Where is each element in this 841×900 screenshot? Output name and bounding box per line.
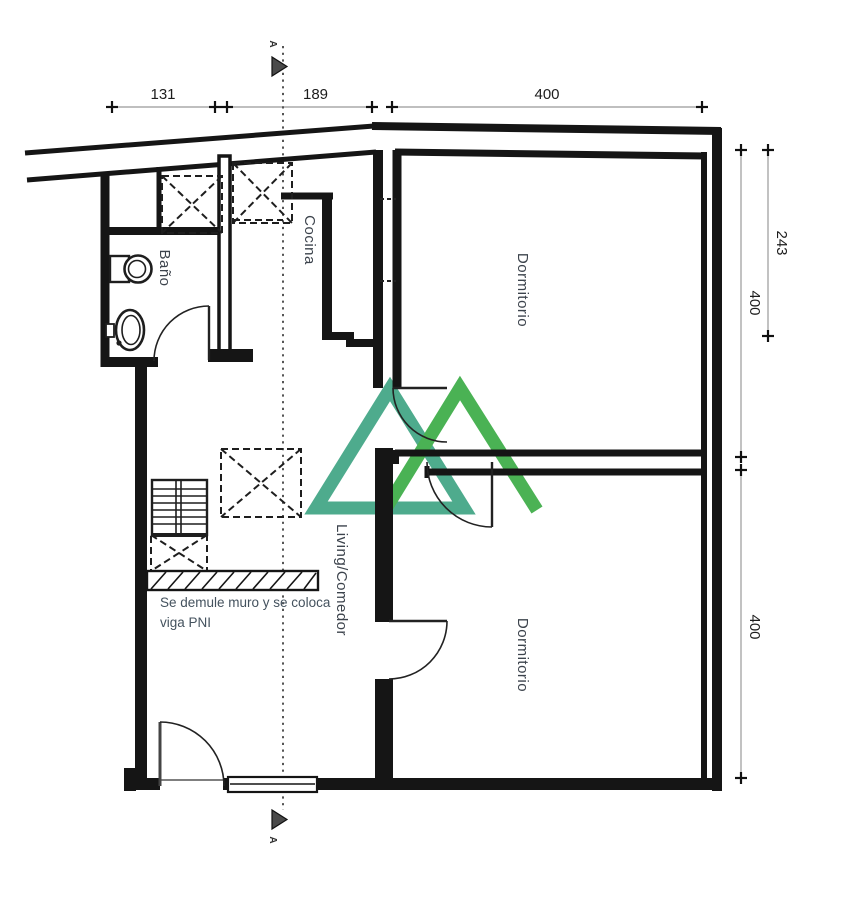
brand-logo-watermark bbox=[316, 388, 537, 510]
door-bathroom bbox=[154, 306, 209, 361]
toilet-icon bbox=[110, 256, 152, 283]
dim-right-upper: 400 bbox=[746, 290, 763, 315]
wall-end-cap bbox=[208, 349, 253, 362]
room-label-living: Living/Comedor bbox=[333, 524, 350, 636]
section-marker-bottom: A bbox=[267, 810, 287, 844]
room-label-bedroom-top: Dormitorio bbox=[514, 253, 531, 327]
floor-plan-page: A A 131 189 400 243 400 400 Baño Cocina … bbox=[0, 0, 841, 900]
section-arrow-top-icon bbox=[272, 57, 287, 76]
dim-right-lower: 400 bbox=[746, 614, 763, 639]
room-label-bedroom-bottom: Dormitorio bbox=[514, 618, 531, 692]
dim-top-left: 131 bbox=[150, 86, 175, 103]
note-line1: Se demule muro y se coloca bbox=[160, 595, 331, 610]
demo-box-stairs bbox=[151, 535, 207, 571]
dim-right-depth: 243 bbox=[773, 230, 790, 255]
wall-bottom-left-cap bbox=[124, 768, 136, 791]
wall-slanted-outer bbox=[25, 126, 374, 153]
wall-bedroom1-top bbox=[395, 152, 706, 156]
sink-icon bbox=[106, 310, 144, 350]
door-bedroom2 bbox=[389, 621, 447, 679]
section-label-top: A bbox=[267, 40, 278, 47]
doors bbox=[154, 306, 492, 786]
dim-top-mid: 189 bbox=[303, 86, 328, 103]
entrance-opening bbox=[160, 777, 223, 792]
bathroom-fixtures bbox=[106, 256, 152, 351]
note-line2: viga PNI bbox=[160, 615, 211, 630]
section-label-bottom: A bbox=[267, 836, 278, 843]
demo-box-closet-left bbox=[162, 176, 222, 233]
section-arrow-bottom-icon bbox=[272, 810, 287, 829]
stairs bbox=[152, 480, 207, 535]
door-entrance bbox=[160, 722, 224, 786]
wall-bath-kitchen-cavity bbox=[219, 156, 230, 352]
demo-box-living bbox=[221, 449, 301, 517]
room-label-bathroom: Baño bbox=[156, 249, 173, 286]
dimension-lines bbox=[112, 107, 768, 778]
dim-top-right: 400 bbox=[534, 86, 559, 103]
wall-kitchen-notch-a bbox=[322, 332, 354, 340]
walls bbox=[25, 126, 721, 791]
wall-top-outer bbox=[372, 126, 721, 131]
dimension-ticks bbox=[106, 101, 774, 784]
window-bottom bbox=[228, 777, 317, 792]
section-marker-top: A bbox=[267, 40, 287, 76]
room-label-kitchen: Cocina bbox=[301, 215, 318, 265]
demolition-hatch-band bbox=[147, 571, 318, 590]
floor-plan-drawing: A A 131 189 400 243 400 400 Baño Cocina … bbox=[0, 0, 841, 900]
